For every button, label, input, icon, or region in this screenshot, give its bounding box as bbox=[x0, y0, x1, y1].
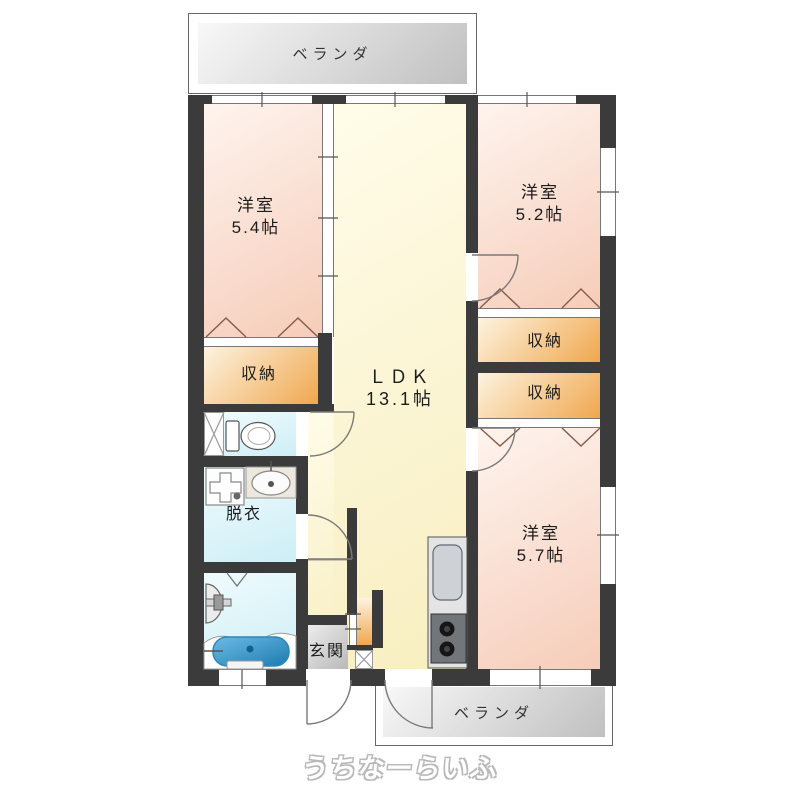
room-ne-name: 洋室 bbox=[516, 182, 565, 204]
closet-nw-label: 収納 bbox=[241, 360, 277, 384]
room-nw-name: 洋室 bbox=[232, 195, 281, 217]
toilet-icon bbox=[226, 421, 275, 451]
room-se-name: 洋室 bbox=[517, 523, 566, 545]
room-nw-size: 5.4帖 bbox=[232, 217, 281, 239]
room-ne-size: 5.2帖 bbox=[516, 204, 565, 226]
ldk-label: ＬＤＫ 13.1帖 bbox=[366, 366, 434, 410]
room-ne-label: 洋室 5.2帖 bbox=[516, 182, 565, 226]
bathtub-icon bbox=[204, 633, 296, 669]
ldk-size: 13.1帖 bbox=[366, 388, 434, 410]
kitchen-sink-icon bbox=[433, 545, 462, 600]
bath-folding-door-mark bbox=[227, 573, 247, 586]
closet-ne-label: 収納 bbox=[527, 327, 563, 351]
room-nw-label: 洋室 5.4帖 bbox=[232, 195, 281, 239]
watermark: うちなーらいふ bbox=[300, 747, 500, 786]
shower-icon bbox=[206, 584, 231, 623]
ldk-name: ＬＤＫ bbox=[366, 366, 434, 388]
kitchen-icon bbox=[428, 537, 467, 668]
washbasin-icon bbox=[246, 461, 296, 498]
floor-plan: ベランダ ベランダ bbox=[0, 0, 800, 800]
room-se-label: 洋室 5.7帖 bbox=[517, 523, 566, 567]
room-se-size: 5.7帖 bbox=[517, 545, 566, 567]
entrance-label: 玄関 bbox=[309, 637, 345, 661]
closet-e-label: 収納 bbox=[527, 379, 563, 403]
dressing-room-label: 脱衣 bbox=[226, 500, 262, 524]
